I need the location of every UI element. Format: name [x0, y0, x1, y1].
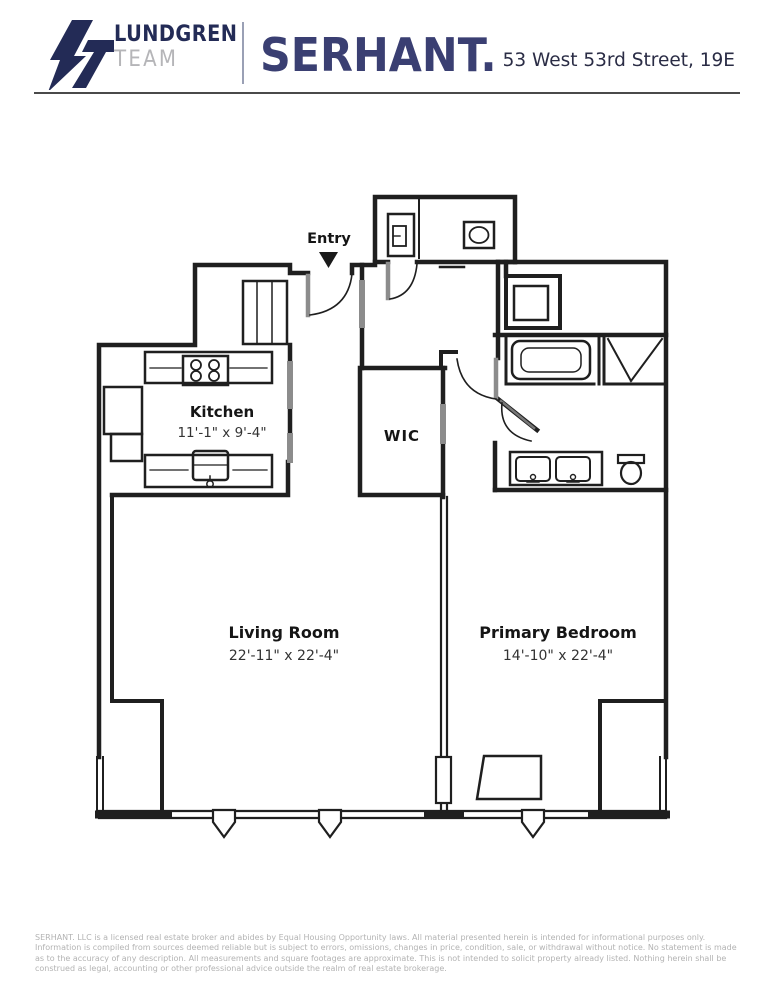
- kitchen-dimensions: 11'-1" x 9'-4": [177, 425, 266, 441]
- primary-bedroom-dimensions: 14'-10" x 22'-4": [503, 648, 613, 664]
- entry-label: Entry: [307, 231, 351, 247]
- living-room-dimensions: 22'-11" x 22'-4": [229, 648, 339, 664]
- floorplan-page: LUNDGREN TEAM SERHANT. 53 West 53rd Stre…: [0, 0, 773, 1000]
- entry-arrow-icon: [319, 252, 338, 268]
- wic-label: WIC: [384, 427, 420, 445]
- legal-disclaimer: SERHANT. LLC is a licensed real estate b…: [35, 933, 741, 975]
- primary-bedroom-label: Primary Bedroom: [479, 623, 637, 642]
- kitchen-label: Kitchen: [190, 403, 254, 421]
- living-room-label: Living Room: [229, 623, 340, 642]
- floorplan-drawing: Entry Kitchen 11'-1" x 9'-4" WIC Living …: [0, 0, 773, 1000]
